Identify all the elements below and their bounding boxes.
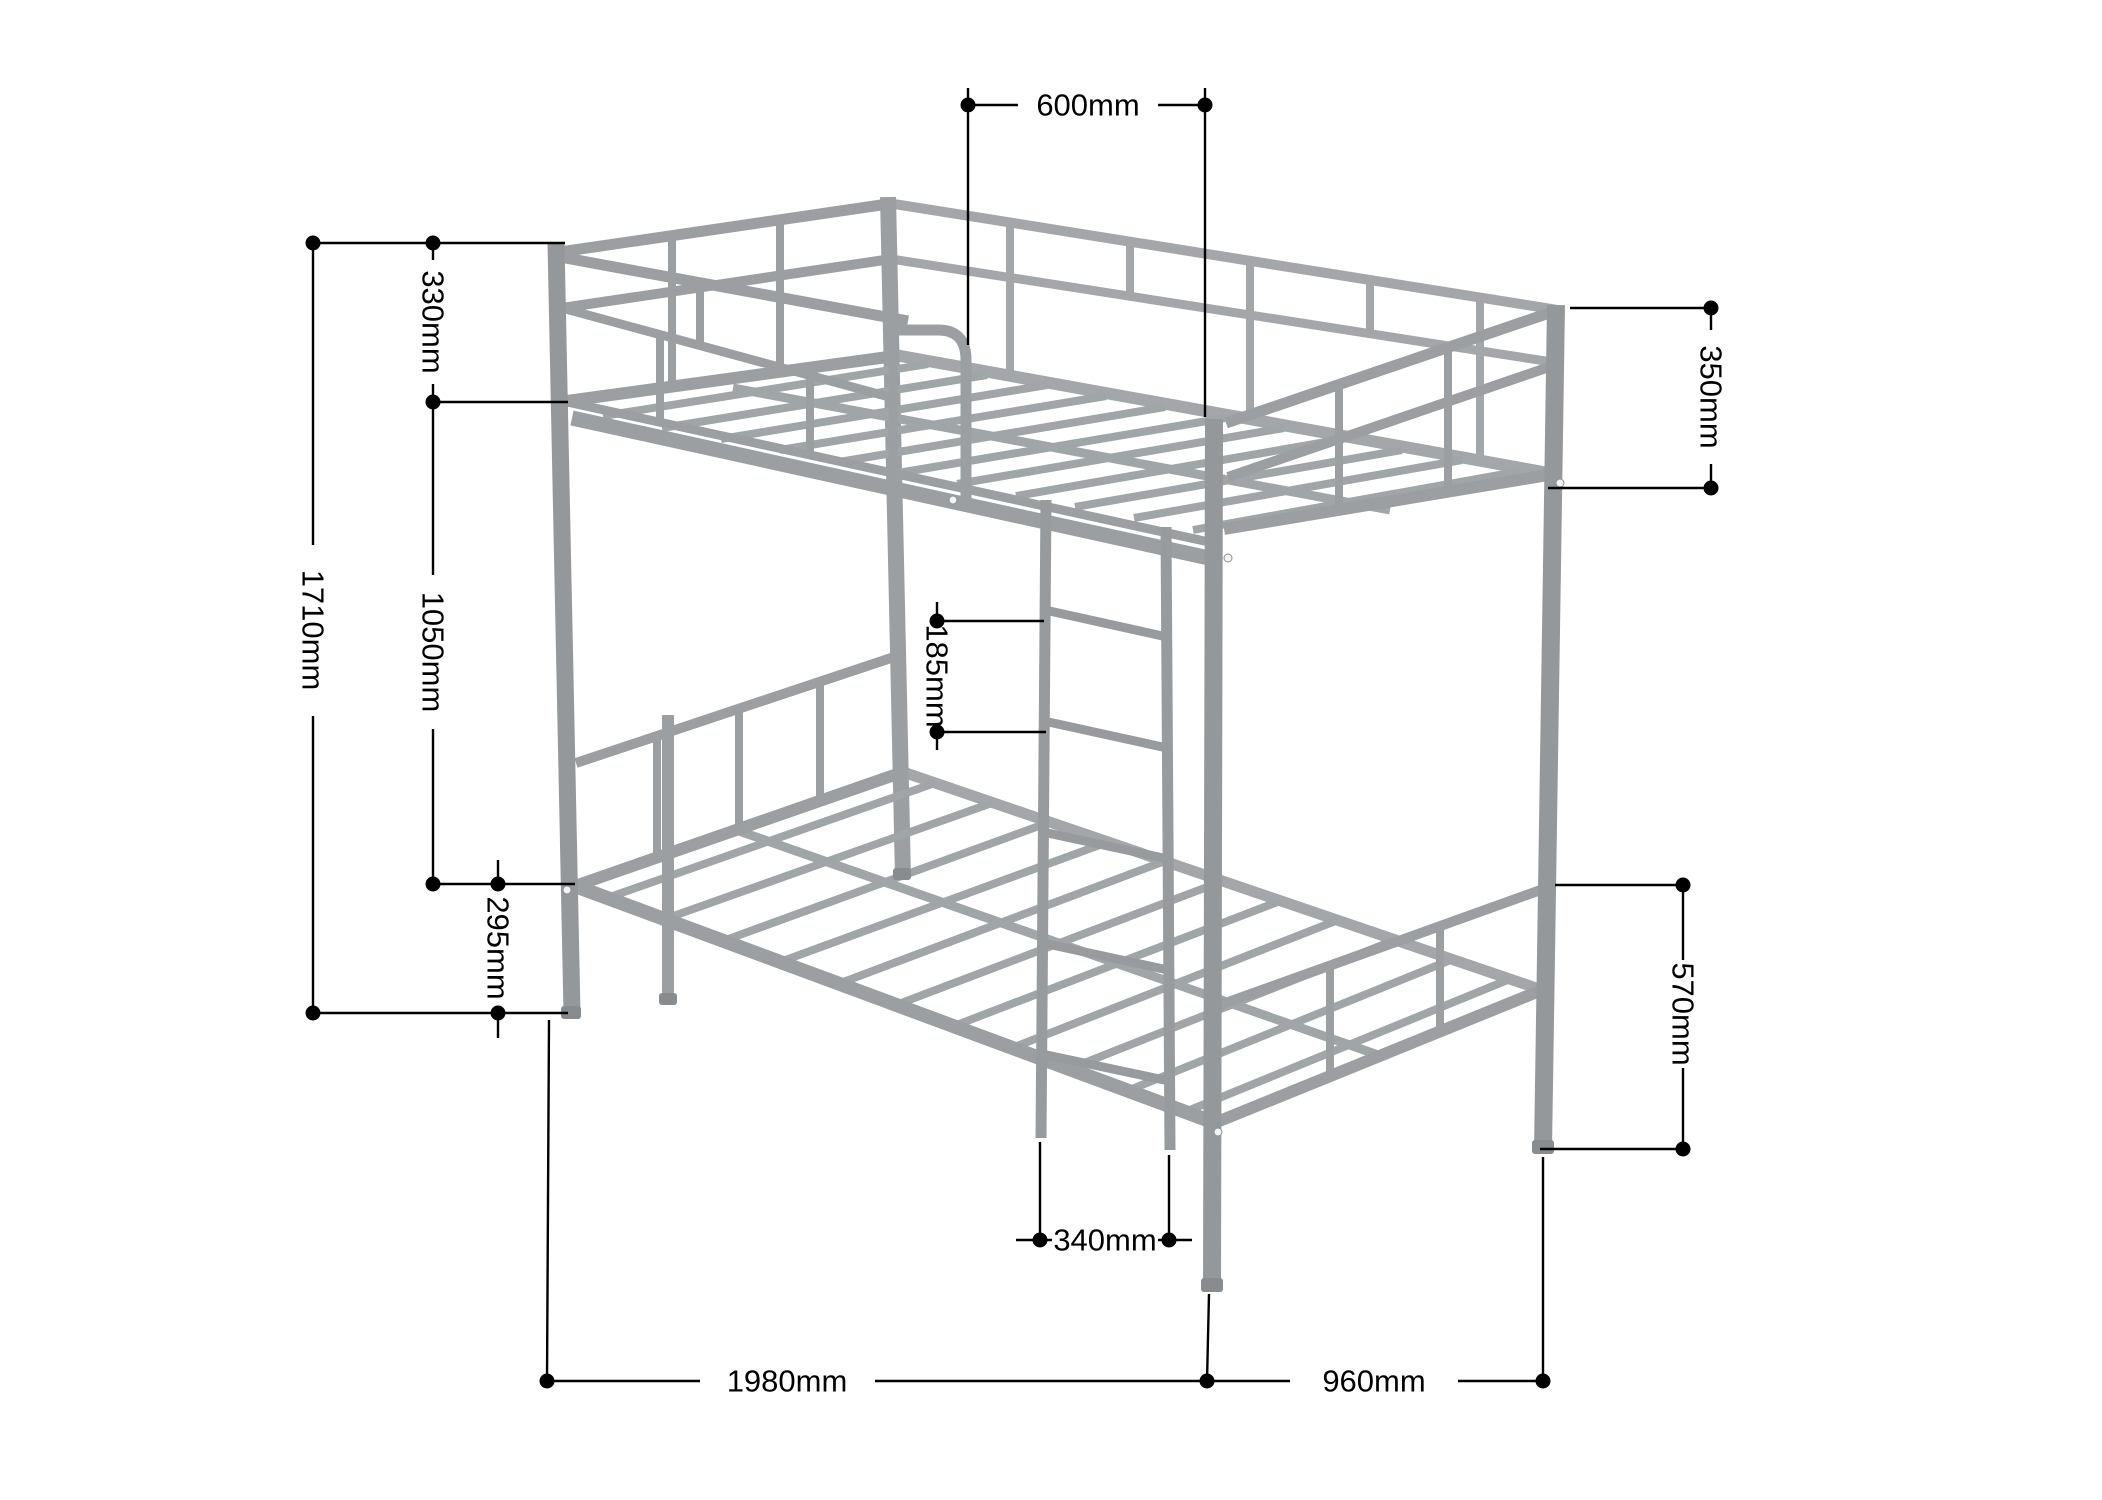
diagram-canvas: 600mm 330mm 1050mm 1710mm 295mm bbox=[0, 0, 2102, 1500]
dim-label-ladder-opening-width: 600mm bbox=[1036, 88, 1139, 123]
dimension-post-top-to-upper-deck: 350mm bbox=[1548, 301, 1729, 496]
bunk-bed-illustration bbox=[556, 197, 1564, 1292]
dim-label-ladder-rung-spacing: 185mm bbox=[920, 624, 955, 727]
dim-label-footboard-to-floor: 570mm bbox=[1666, 962, 1701, 1065]
dim-label-ladder-width: 340mm bbox=[1053, 1223, 1156, 1258]
dim-label-lower-deck-floor-clearance: 295mm bbox=[481, 896, 516, 999]
dim-label-overall-width: 960mm bbox=[1322, 1364, 1425, 1399]
dimension-lower-deck-floor-clearance: 295mm bbox=[481, 860, 516, 1038]
front-left-post bbox=[556, 243, 572, 1013]
dim-label-overall-length: 1980mm bbox=[727, 1364, 848, 1399]
dimension-ladder-width: 340mm bbox=[1016, 1142, 1192, 1258]
rear-guard-rails bbox=[888, 203, 1558, 990]
bunk-bed-dimension-drawing: 600mm 330mm 1050mm 1710mm 295mm bbox=[0, 0, 2102, 1500]
rear-right-post bbox=[1543, 305, 1556, 1150]
dim-label-upper-guardrail-height: 330mm bbox=[416, 270, 451, 373]
dimension-guardrail-and-bunk-gap: 330mm 1050mm bbox=[313, 236, 575, 1014]
ladder-right-rail bbox=[1166, 527, 1170, 1150]
front-right-post bbox=[1212, 419, 1214, 1288]
dim-label-bunk-to-bunk-height: 1050mm bbox=[416, 592, 451, 713]
dimension-footboard-to-floor: 570mm bbox=[1540, 878, 1701, 1157]
dim-label-overall-height: 1710mm bbox=[296, 570, 331, 691]
ladder-left-rail bbox=[1041, 500, 1046, 1138]
dimension-overall-height: 1710mm bbox=[296, 236, 331, 1021]
dimension-ladder-rung-spacing: 185mm bbox=[920, 602, 1047, 750]
dim-label-post-top-to-upper-deck: 350mm bbox=[1694, 345, 1729, 448]
